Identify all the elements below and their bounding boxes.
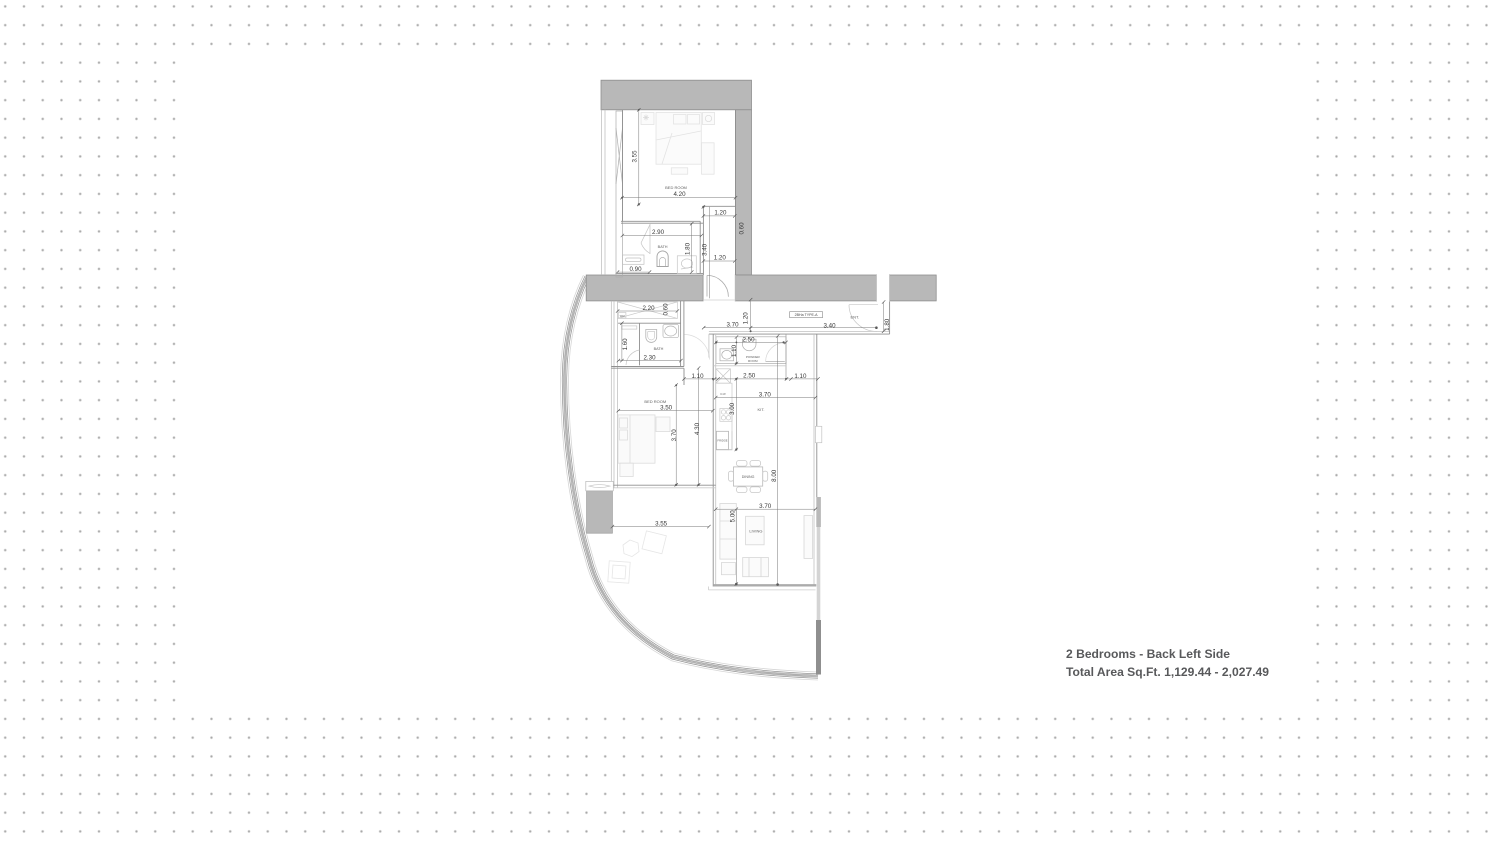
svg-text:LIVING: LIVING (749, 528, 762, 533)
svg-text:0.60: 0.60 (663, 303, 670, 316)
svg-text:KIT.: KIT. (758, 407, 765, 412)
svg-text:BED ROOM: BED ROOM (644, 399, 666, 404)
svg-text:1.20: 1.20 (714, 255, 727, 262)
svg-text:3.70: 3.70 (671, 429, 678, 442)
svg-text:BATH: BATH (658, 245, 668, 249)
svg-text:FRIDGE: FRIDGE (717, 439, 727, 443)
svg-text:2.50: 2.50 (743, 373, 756, 380)
svg-text:2BHa TYPE-A: 2BHa TYPE-A (795, 313, 819, 317)
svg-text:1.10: 1.10 (794, 373, 807, 380)
svg-text:3.40: 3.40 (702, 243, 709, 256)
svg-text:3.70: 3.70 (726, 322, 739, 329)
svg-text:1.80: 1.80 (884, 318, 891, 331)
svg-text:3.55: 3.55 (631, 150, 638, 163)
svg-text:1.80: 1.80 (685, 242, 692, 255)
svg-text:0.60: 0.60 (739, 222, 746, 235)
svg-text:1.20: 1.20 (714, 209, 727, 216)
svg-text:2.20: 2.20 (642, 305, 655, 312)
svg-text:1.20: 1.20 (743, 312, 750, 325)
svg-text:2.30: 2.30 (643, 355, 656, 362)
svg-text:3.40: 3.40 (823, 322, 836, 329)
svg-text:BATH: BATH (654, 347, 664, 351)
svg-text:ENT.: ENT. (850, 314, 859, 319)
svg-text:3.70: 3.70 (759, 503, 772, 510)
svg-text:3.55: 3.55 (655, 520, 668, 527)
svg-text:0.90: 0.90 (629, 266, 642, 273)
svg-text:3.00: 3.00 (729, 402, 736, 415)
svg-text:1.10: 1.10 (691, 373, 704, 380)
svg-text:8.00: 8.00 (771, 469, 778, 482)
svg-text:4.30: 4.30 (694, 422, 701, 435)
svg-text:ROOM: ROOM (748, 359, 758, 363)
svg-text:2.90: 2.90 (652, 229, 665, 236)
svg-text:3.70: 3.70 (759, 391, 772, 398)
svg-text:4.20: 4.20 (673, 191, 686, 198)
svg-text:W/M: W/M (620, 315, 625, 318)
svg-text:BED ROOM: BED ROOM (665, 185, 687, 190)
svg-text:1.60: 1.60 (622, 338, 629, 351)
svg-text:2.50: 2.50 (742, 336, 755, 343)
svg-text:3.50: 3.50 (660, 404, 673, 411)
svg-text:DINING: DINING (742, 475, 755, 479)
svg-text:5.00: 5.00 (729, 510, 736, 523)
svg-text:1.10: 1.10 (731, 344, 738, 357)
svg-text:D.W: D.W (720, 392, 726, 396)
